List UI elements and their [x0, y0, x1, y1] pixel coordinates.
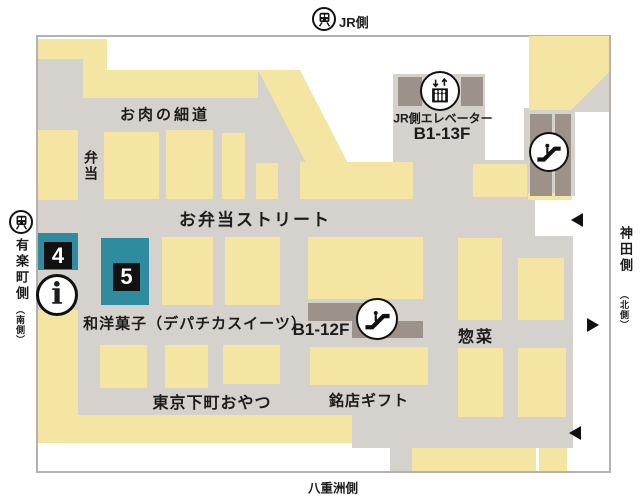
escalator-glyph: [534, 137, 564, 167]
shop-block: [162, 237, 213, 305]
label-b1-12f: B1-12F: [293, 320, 350, 340]
street-label-wayo: 和洋菓子（デパチカスイーツ）: [83, 313, 307, 334]
floor-map: 4 5: [0, 0, 640, 499]
street-label-meiten: 銘店ギフト: [329, 390, 409, 411]
shop-block: [166, 130, 213, 199]
shop-block: [310, 347, 428, 385]
shop-block: [223, 345, 280, 384]
arrow-left-icon: [571, 213, 583, 227]
elevator-bank: [398, 77, 422, 106]
shop-block: [412, 448, 536, 471]
shop-block: [458, 238, 502, 320]
shop-block: [38, 39, 87, 59]
station-label-jr: JR側: [339, 12, 369, 31]
train-glyph: [316, 11, 333, 28]
corridor-exit-yaesu: [390, 448, 412, 471]
shop-block: [458, 348, 503, 417]
escalator-icon: [529, 132, 569, 172]
street-label-obento: お弁当ストリート: [179, 206, 331, 231]
corridor-area: [352, 415, 573, 448]
escalator-glyph: [362, 304, 393, 335]
shop-block: [308, 237, 423, 299]
shop-block: [518, 258, 564, 320]
station-label-kanda-sub: （北側）: [618, 290, 631, 330]
station-label-yurakucho: 有楽町側: [12, 238, 31, 302]
elevator-glyph: [426, 77, 454, 105]
shop-block: [100, 345, 147, 388]
train-icon: [312, 7, 336, 31]
street-label-souzai: 惣菜: [458, 323, 494, 347]
street-label-shitamachi: 東京下町おやつ: [152, 389, 271, 413]
elevator-icon: [420, 71, 460, 111]
shop-block: [104, 132, 159, 199]
shop-block: [225, 237, 280, 305]
shop-block: [518, 348, 566, 417]
shop-block: [38, 415, 352, 443]
marker-5-label: 5: [120, 264, 132, 290]
shop-block: [83, 70, 258, 98]
marker-4: 4: [44, 242, 72, 269]
arrow-right-icon: [587, 318, 599, 332]
info-icon: i: [36, 274, 78, 316]
street-label-bento: 弁当: [81, 150, 101, 182]
marker-5: 5: [113, 263, 140, 291]
shop-block: [300, 162, 413, 199]
shop-block: [222, 133, 245, 199]
marker-4-label: 4: [52, 243, 64, 269]
station-label-yurakucho-sub: （南側）: [14, 305, 27, 345]
shop-block: [165, 345, 208, 388]
escalator-icon: [356, 298, 398, 340]
info-icon-glyph: i: [51, 280, 62, 310]
train-icon: [9, 210, 33, 234]
station-label-kanda: 神田側: [616, 226, 635, 274]
shop-block: [38, 130, 78, 200]
street-label-oniku: お肉の細道: [120, 104, 210, 125]
arrow-left-icon: [569, 426, 581, 440]
train-glyph: [13, 214, 30, 231]
station-label-yaesu: 八重洲側: [308, 478, 358, 497]
shop-block: [539, 448, 567, 471]
shop-block: [256, 163, 278, 199]
elevator-bank: [461, 77, 483, 106]
shop-block: [473, 164, 527, 197]
label-b1-13f: B1-13F: [414, 124, 471, 144]
